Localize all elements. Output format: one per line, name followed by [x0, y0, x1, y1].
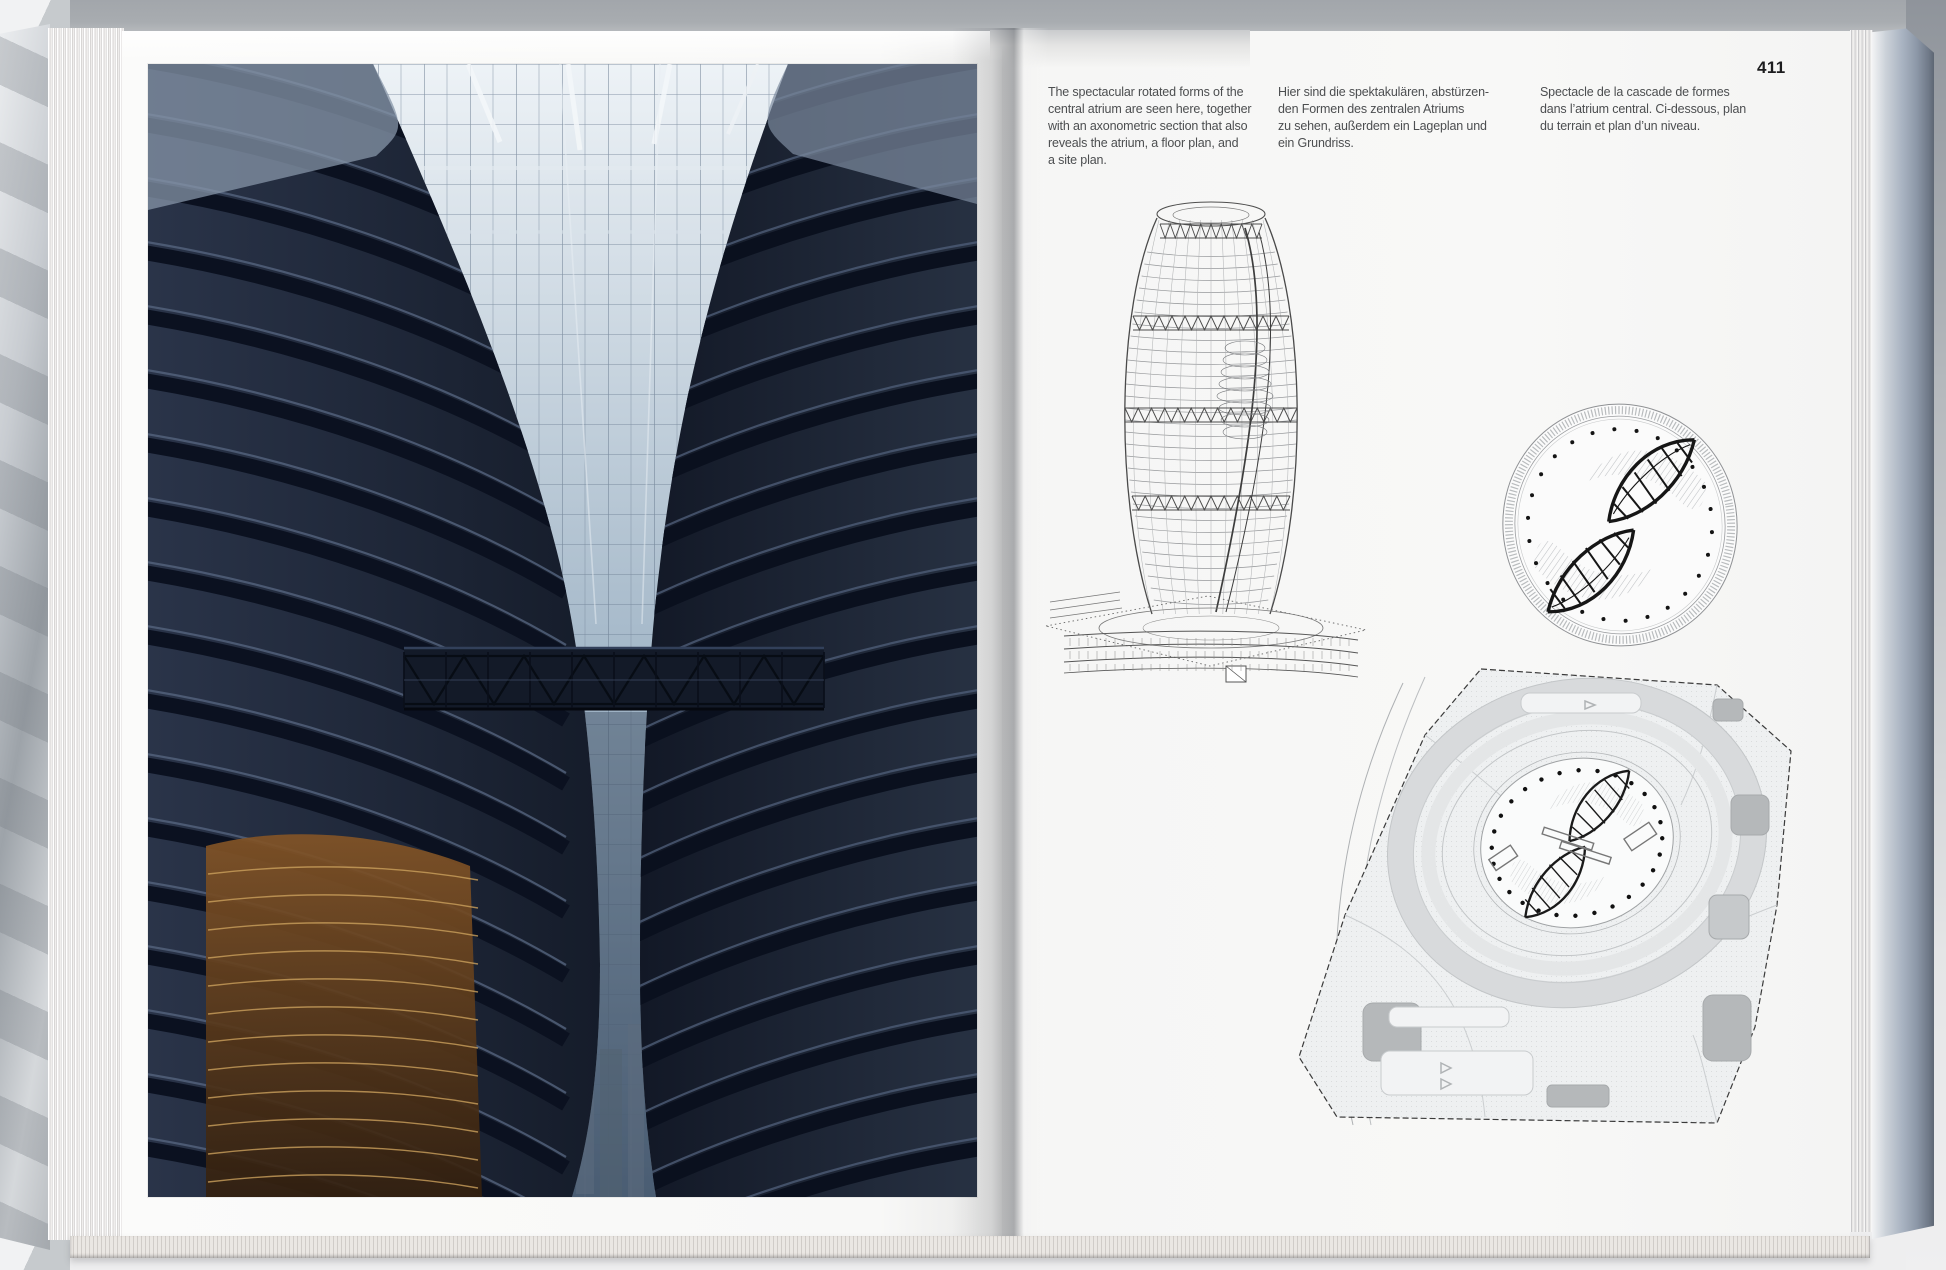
sky-bridge	[404, 648, 824, 710]
axon-art	[1040, 198, 1370, 698]
book-cover-left-edge	[0, 24, 50, 1250]
page-number: 411	[1757, 58, 1786, 78]
atrium-photo-art	[148, 64, 977, 1197]
caption-french: Spectacle de la cascade de formes dans l…	[1540, 84, 1768, 135]
caption-english: The spectacular rotated forms of the cen…	[1048, 84, 1276, 169]
warm-interior	[206, 834, 482, 1197]
site-plan-drawing	[1285, 655, 1805, 1147]
book-cover-right-edge	[1872, 26, 1934, 1244]
floor-plan-art	[1500, 402, 1740, 648]
page-stack-bottom	[70, 1236, 1870, 1258]
floor-plan-drawing	[1500, 402, 1740, 648]
open-book-spread: 411 The spectacular rotated forms of the…	[0, 0, 1946, 1270]
atrium-photo	[148, 64, 977, 1197]
site-plan-art	[1285, 655, 1805, 1147]
inner-pages-top-edge	[990, 30, 1250, 68]
axonometric-section-drawing	[1040, 198, 1370, 698]
page-stack-left	[48, 28, 124, 1240]
page-stack-right	[1850, 30, 1873, 1232]
caption-german: Hier sind die spektakulären, abstürzen- …	[1278, 84, 1506, 152]
